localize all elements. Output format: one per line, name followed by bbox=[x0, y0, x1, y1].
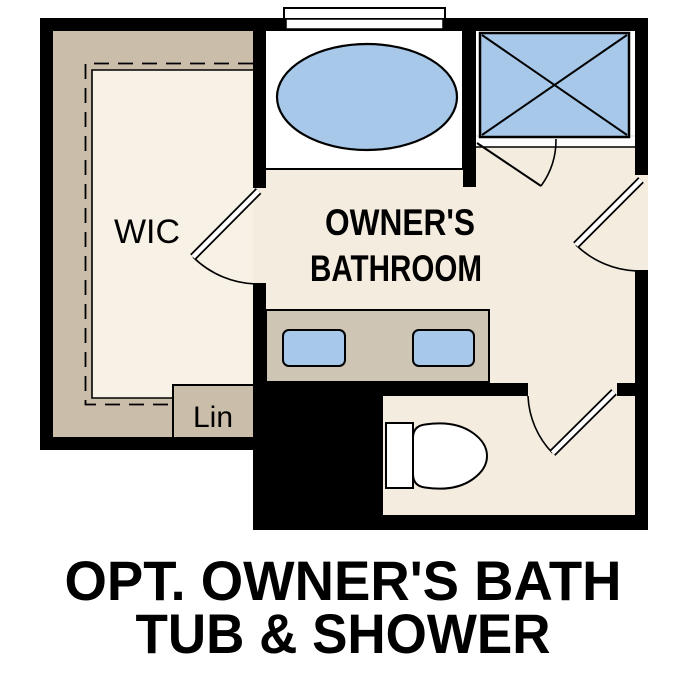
shower-stall bbox=[476, 33, 635, 147]
wall-wic-bath-upper bbox=[253, 31, 266, 188]
bathroom-label-line2: BATHROOM bbox=[310, 248, 482, 289]
wall-right-upper bbox=[635, 18, 648, 175]
window bbox=[284, 8, 445, 29]
wall-right-lower bbox=[635, 270, 648, 530]
double-vanity bbox=[266, 310, 489, 382]
wall-toilet-top bbox=[383, 383, 528, 396]
wall-toilet-top-stub bbox=[617, 383, 635, 396]
tub-alcove bbox=[265, 30, 463, 169]
window-outer-pane bbox=[284, 8, 445, 19]
toilet-tank bbox=[386, 423, 413, 488]
wall-chase-block bbox=[253, 382, 383, 530]
sink-right bbox=[413, 330, 474, 366]
wall-left bbox=[40, 18, 53, 450]
bathtub bbox=[277, 44, 457, 150]
linen-label: Lin bbox=[193, 401, 233, 434]
floor-plan-page: Lin WIC OWNER'S BATHROOM OPT. OWNER'S BA… bbox=[0, 0, 687, 687]
wic-label: WIC bbox=[114, 213, 180, 251]
window-inner-pane bbox=[286, 19, 443, 29]
caption-title: OPT. OWNER'S BATH TUB & SHOWER bbox=[65, 549, 622, 665]
linen-closet: Lin bbox=[173, 385, 254, 438]
toilet bbox=[386, 423, 487, 489]
wall-wic-bath-lower bbox=[253, 283, 266, 382]
bathroom-label-line1: OWNER'S bbox=[325, 202, 475, 243]
sink-left bbox=[283, 330, 345, 366]
wall-bottom bbox=[383, 515, 648, 530]
wall-tub-shower-divider bbox=[463, 31, 476, 187]
floor-plan-drawing: Lin WIC OWNER'S BATHROOM OPT. OWNER'S BA… bbox=[0, 0, 687, 687]
caption-line2: TUB & SHOWER bbox=[136, 602, 551, 665]
